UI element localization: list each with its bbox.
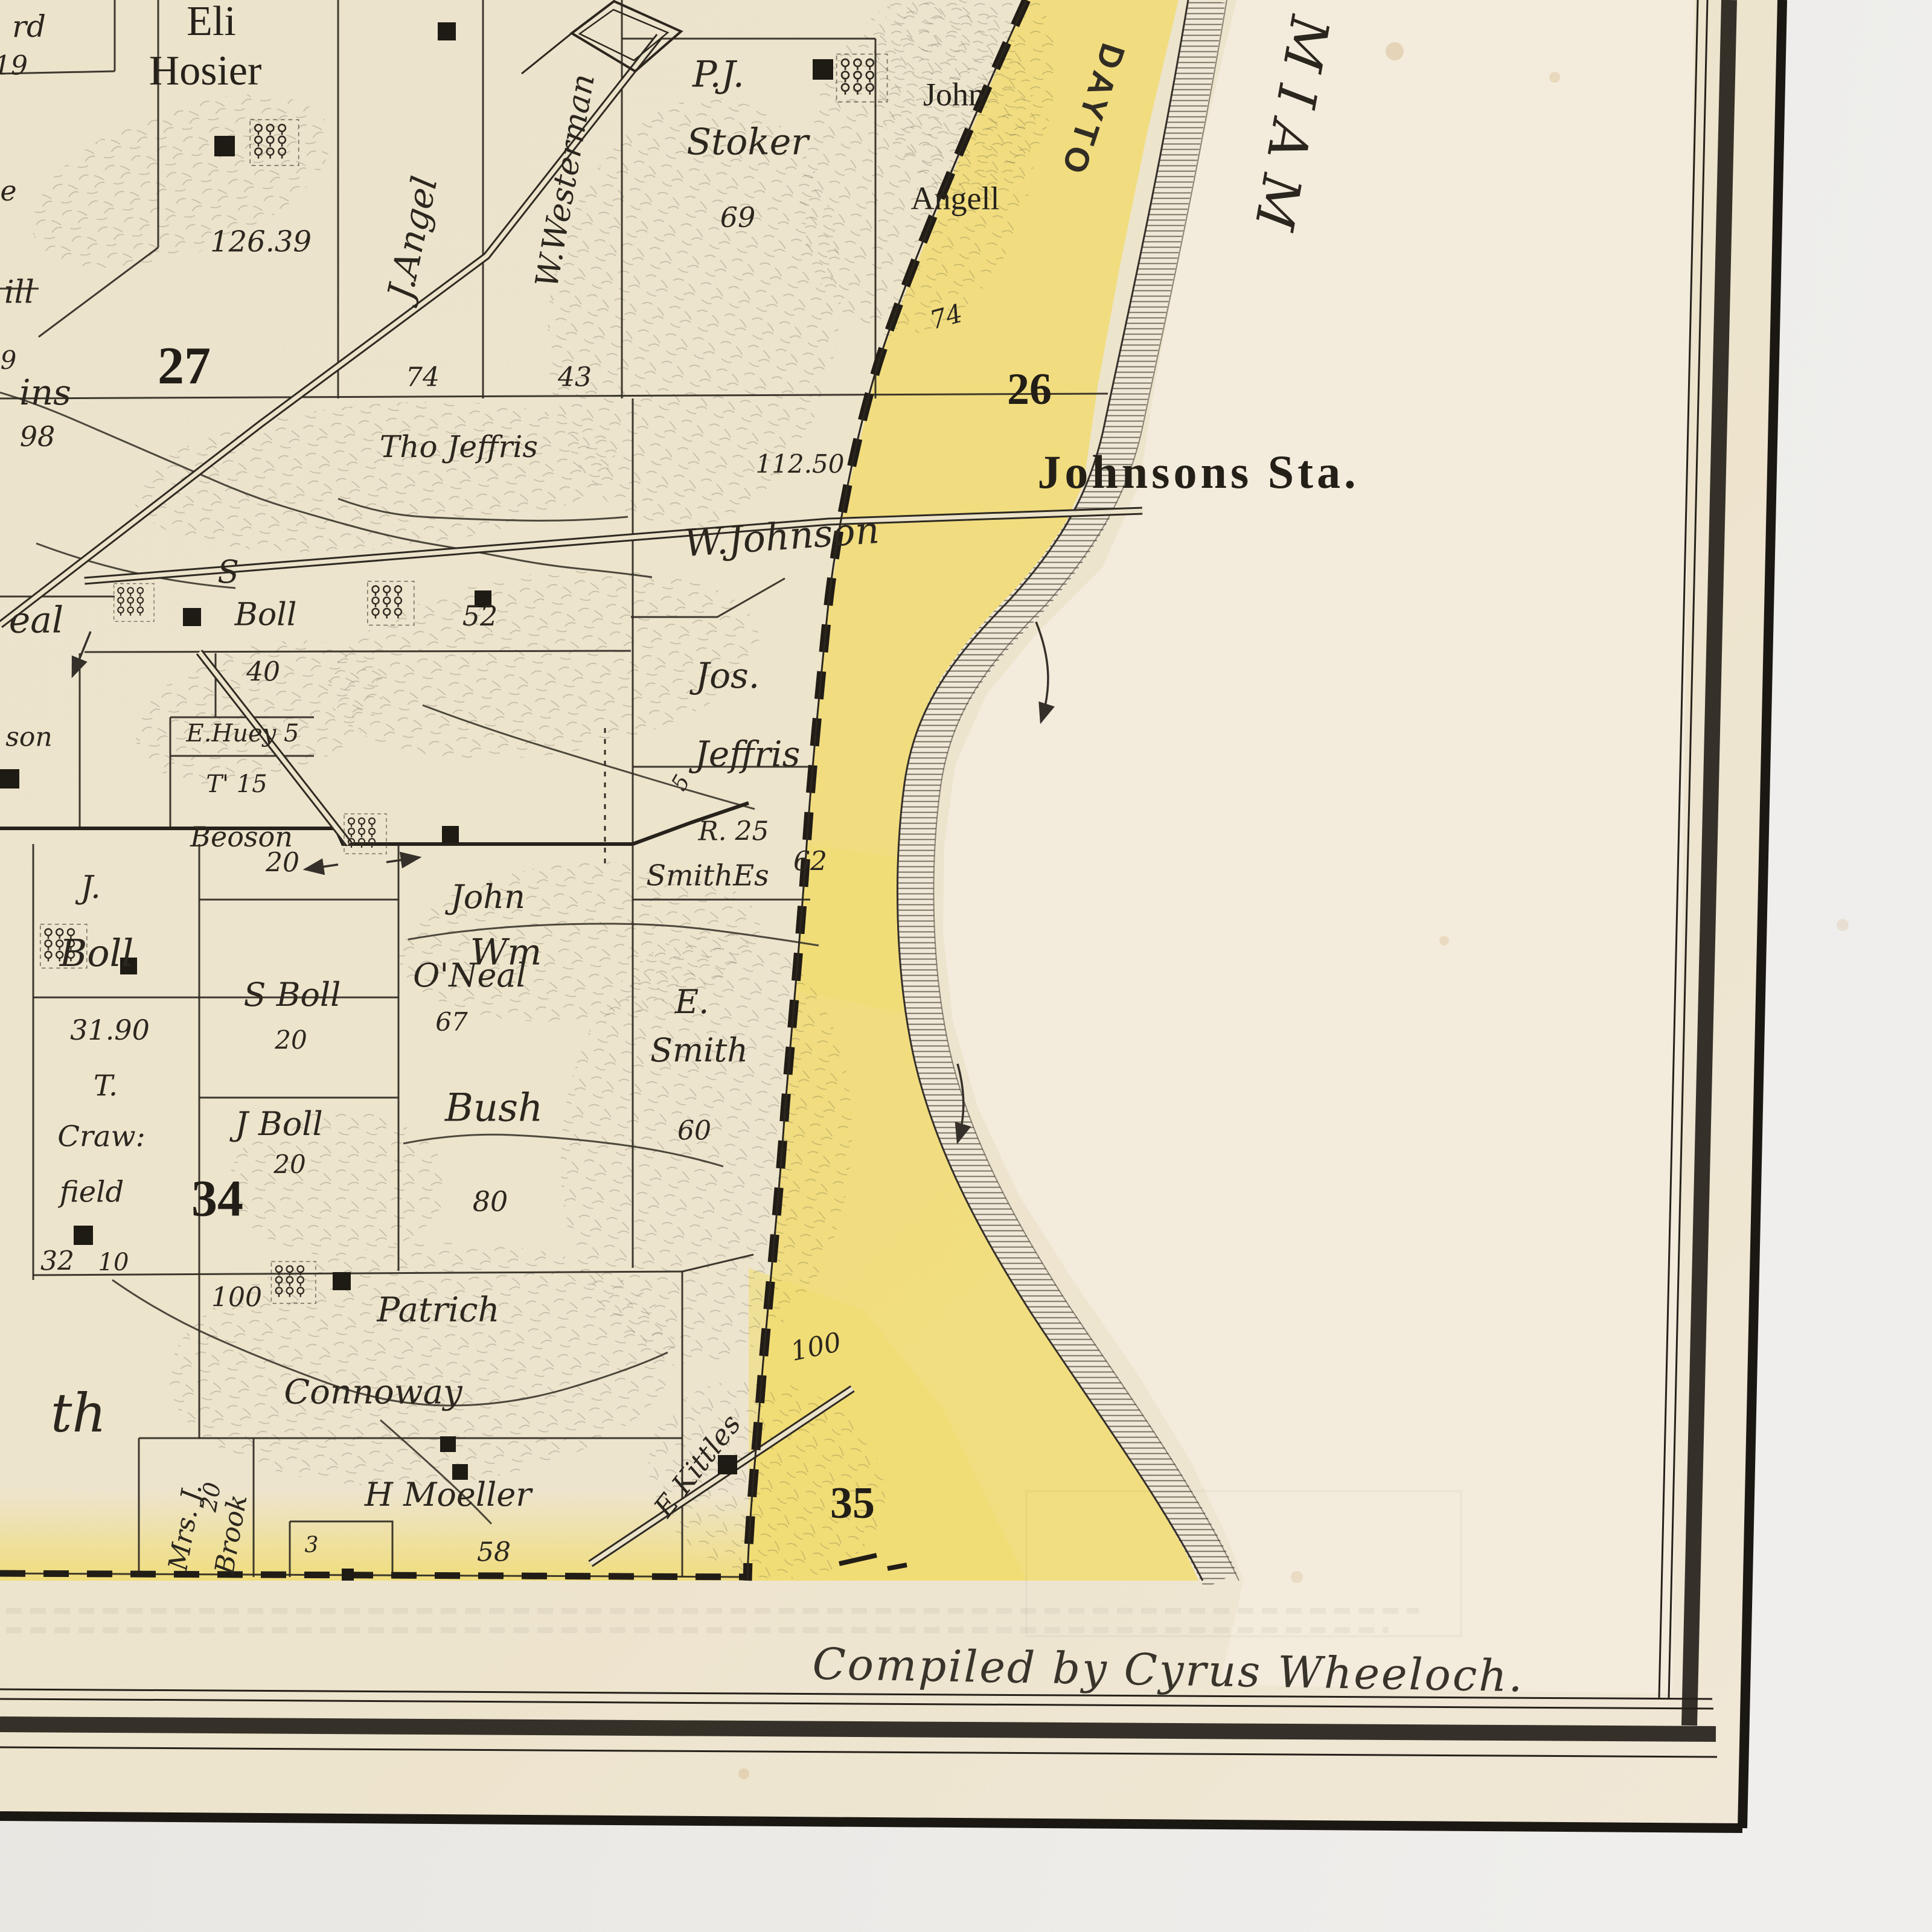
parcel-label: 52 (462, 600, 498, 632)
house-symbol (342, 1569, 354, 1581)
parcel-label: Angell (911, 180, 1000, 216)
house-symbol (442, 826, 459, 843)
parcel-label: Boll (234, 597, 297, 633)
parcel-label: rd (12, 9, 46, 44)
parcel-label: 20 (274, 1025, 307, 1055)
parcel-label: Boll (59, 931, 134, 975)
parcel-label: T' 15 (206, 770, 267, 798)
parcel-label: 40 (246, 657, 280, 688)
parcel-label: Jeffris (689, 734, 801, 775)
parcel-label: SmithEs (646, 859, 769, 893)
parcel-label: 126.39 (210, 225, 312, 259)
parcel-label: Craw: (57, 1120, 146, 1154)
house-symbol (214, 136, 235, 156)
section-number-27: 27 (158, 337, 211, 395)
parcel-label: 31.90 (70, 1014, 150, 1046)
parcel-label: Hosier (149, 48, 262, 94)
house-symbol (440, 1436, 456, 1452)
parcel-label: S (217, 555, 239, 591)
section-number-26: 26 (1007, 365, 1052, 414)
parcel-label: field (58, 1176, 124, 1209)
parcel-label: 58 (477, 1537, 511, 1568)
parcel-label: E. (674, 983, 709, 1021)
parcel-label: J Boll (229, 1105, 323, 1143)
parcel-label: Tho Jeffris (380, 429, 538, 464)
house-symbol (813, 59, 833, 80)
parcel-label: 80 (473, 1185, 508, 1218)
house-symbol (0, 769, 19, 788)
parcel-label: 98 (20, 420, 56, 453)
house-symbol (74, 1226, 93, 1245)
house-symbol (438, 22, 456, 40)
parcel-label: 3 (305, 1533, 319, 1558)
parcel-label: 19 (0, 51, 28, 82)
parcel-label: R. 25 (697, 816, 769, 847)
parcel-label: e (0, 174, 16, 207)
parcel-label: Patrich (376, 1291, 499, 1330)
parcel-label: Jos. (689, 655, 760, 696)
parcel-label: John (923, 76, 985, 112)
parcel-label: Bush (444, 1086, 543, 1131)
parcel-label: H Moeller (364, 1476, 534, 1514)
parcel-label: John (444, 878, 525, 916)
parcel-label: 32 (40, 1246, 74, 1277)
station-label: Johnsons Sta. (1037, 446, 1359, 498)
parcel-label: Wm (470, 932, 542, 974)
parcel-label: 20 (265, 848, 299, 878)
section-number-34: 34 (191, 1169, 243, 1227)
parcel-label: 10 (98, 1249, 129, 1276)
parcel-label: P.J. (692, 54, 744, 96)
parcel-label: 60 (677, 1116, 711, 1147)
parcel-label: Connoway (284, 1373, 463, 1412)
parcel-label: 62 (793, 846, 827, 877)
parcel-label: 100 (211, 1282, 262, 1313)
parcel-label: T. (94, 1069, 118, 1103)
parcel-label: eal (9, 600, 63, 642)
section-number-35: 35 (830, 1479, 875, 1528)
house-symbol (333, 1272, 351, 1290)
parcel-label: 9 (1, 345, 17, 375)
parcel-label: th (51, 1382, 106, 1444)
parcel-label: 20 (273, 1150, 305, 1179)
parcel-label: ill (4, 275, 34, 311)
parcel-label: 74 (406, 362, 440, 393)
parcel-label: Smith (650, 1031, 748, 1069)
parcel-label: 69 (720, 201, 756, 234)
framed-map-photo: EliHosier126.39J.Angel74W.Westerman43P.J… (0, 0, 1932, 1932)
parcel-label: 67 (435, 1007, 468, 1037)
parcel-label: son (5, 722, 52, 753)
parcel-label: Eli (187, 0, 236, 45)
parcel-label: E.Huey 5 (186, 720, 299, 747)
parcel-label: S Boll (244, 976, 341, 1014)
house-symbol (183, 608, 201, 626)
parcel-label: 43 (557, 362, 592, 393)
parcel-label: ins (19, 372, 71, 413)
parcel-label: Stoker (686, 121, 810, 164)
parcel-label: 112.50 (756, 449, 845, 479)
